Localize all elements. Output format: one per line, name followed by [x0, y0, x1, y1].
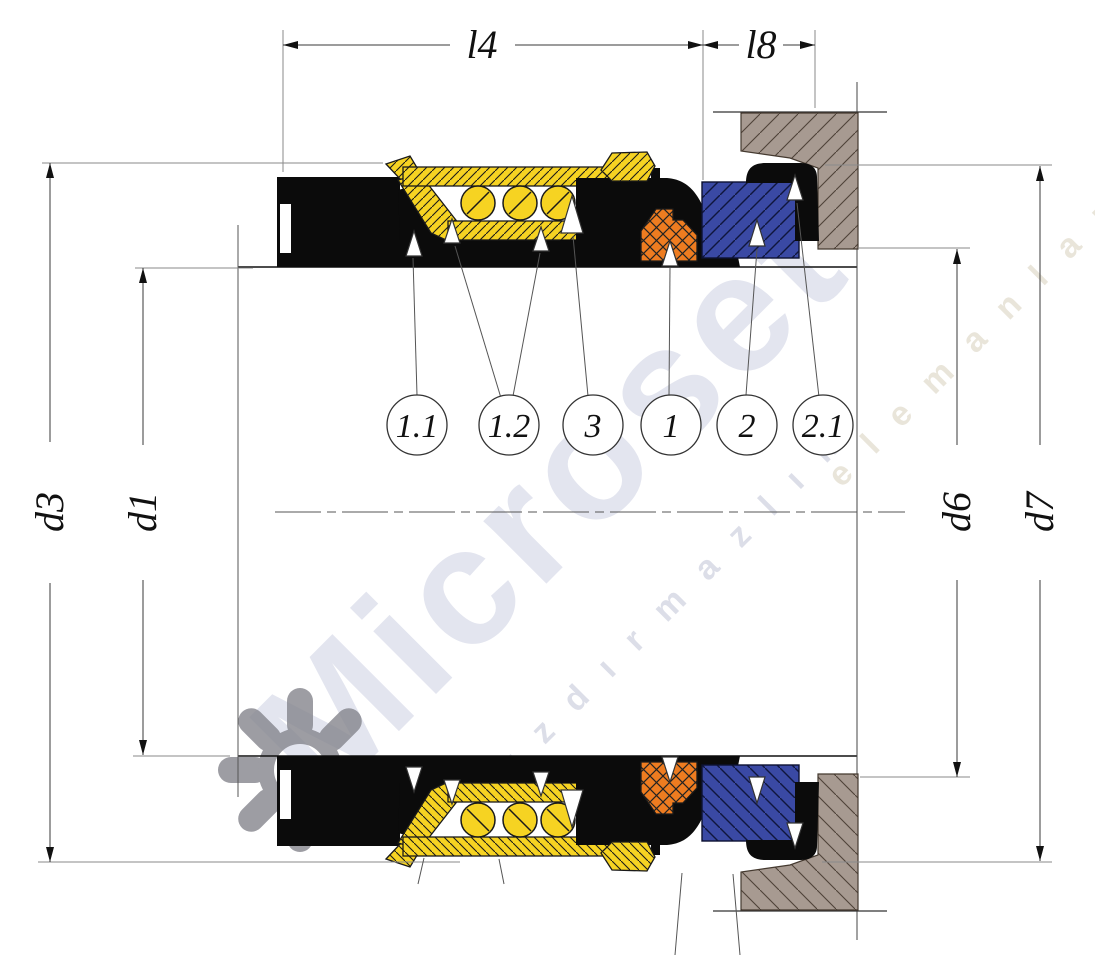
callout-2-label: 2 [739, 408, 756, 445]
dim-label-l8: l8 [745, 22, 776, 67]
callout-1-1-label: 1.1 [396, 408, 439, 445]
dim-label-d3: d3 [27, 492, 72, 532]
watermark-line2-text: elemanları [820, 150, 1095, 494]
seal-cross-section-drawing: Microset sızdırmazlık elemanları [0, 0, 1095, 955]
dim-label-l4: l4 [466, 22, 497, 67]
callout-3-label: 3 [584, 408, 602, 445]
dim-label-d6: d6 [934, 492, 979, 532]
seal-assembly-upper [277, 112, 887, 267]
dim-label-d7: d7 [1017, 490, 1062, 532]
seal-assembly-lower [277, 756, 887, 911]
callout-1-1: 1.1 [387, 395, 447, 455]
bellows-notch [280, 204, 291, 253]
technical-drawing-canvas: Microset sızdırmazlık elemanları [0, 0, 1095, 955]
spring-right-hook [601, 152, 655, 181]
callout-2: 2 [717, 395, 777, 455]
dimension-d3: d3 [27, 163, 72, 862]
dim-label-d1: d1 [120, 492, 165, 532]
spring-coils [461, 186, 575, 220]
callout-2-1: 2.1 [793, 395, 853, 455]
callout-3: 3 [563, 395, 623, 455]
callout-1-label: 1 [663, 408, 680, 445]
callout-1: 1 [641, 395, 701, 455]
callout-2-1-label: 2.1 [802, 408, 845, 445]
callout-1-2: 1.2 [479, 395, 539, 455]
callout-1-2-label: 1.2 [488, 408, 531, 445]
dimension-d1: d1 [120, 268, 165, 755]
dimension-l4: l4 [283, 22, 703, 67]
dimension-l8: l8 [703, 22, 815, 67]
